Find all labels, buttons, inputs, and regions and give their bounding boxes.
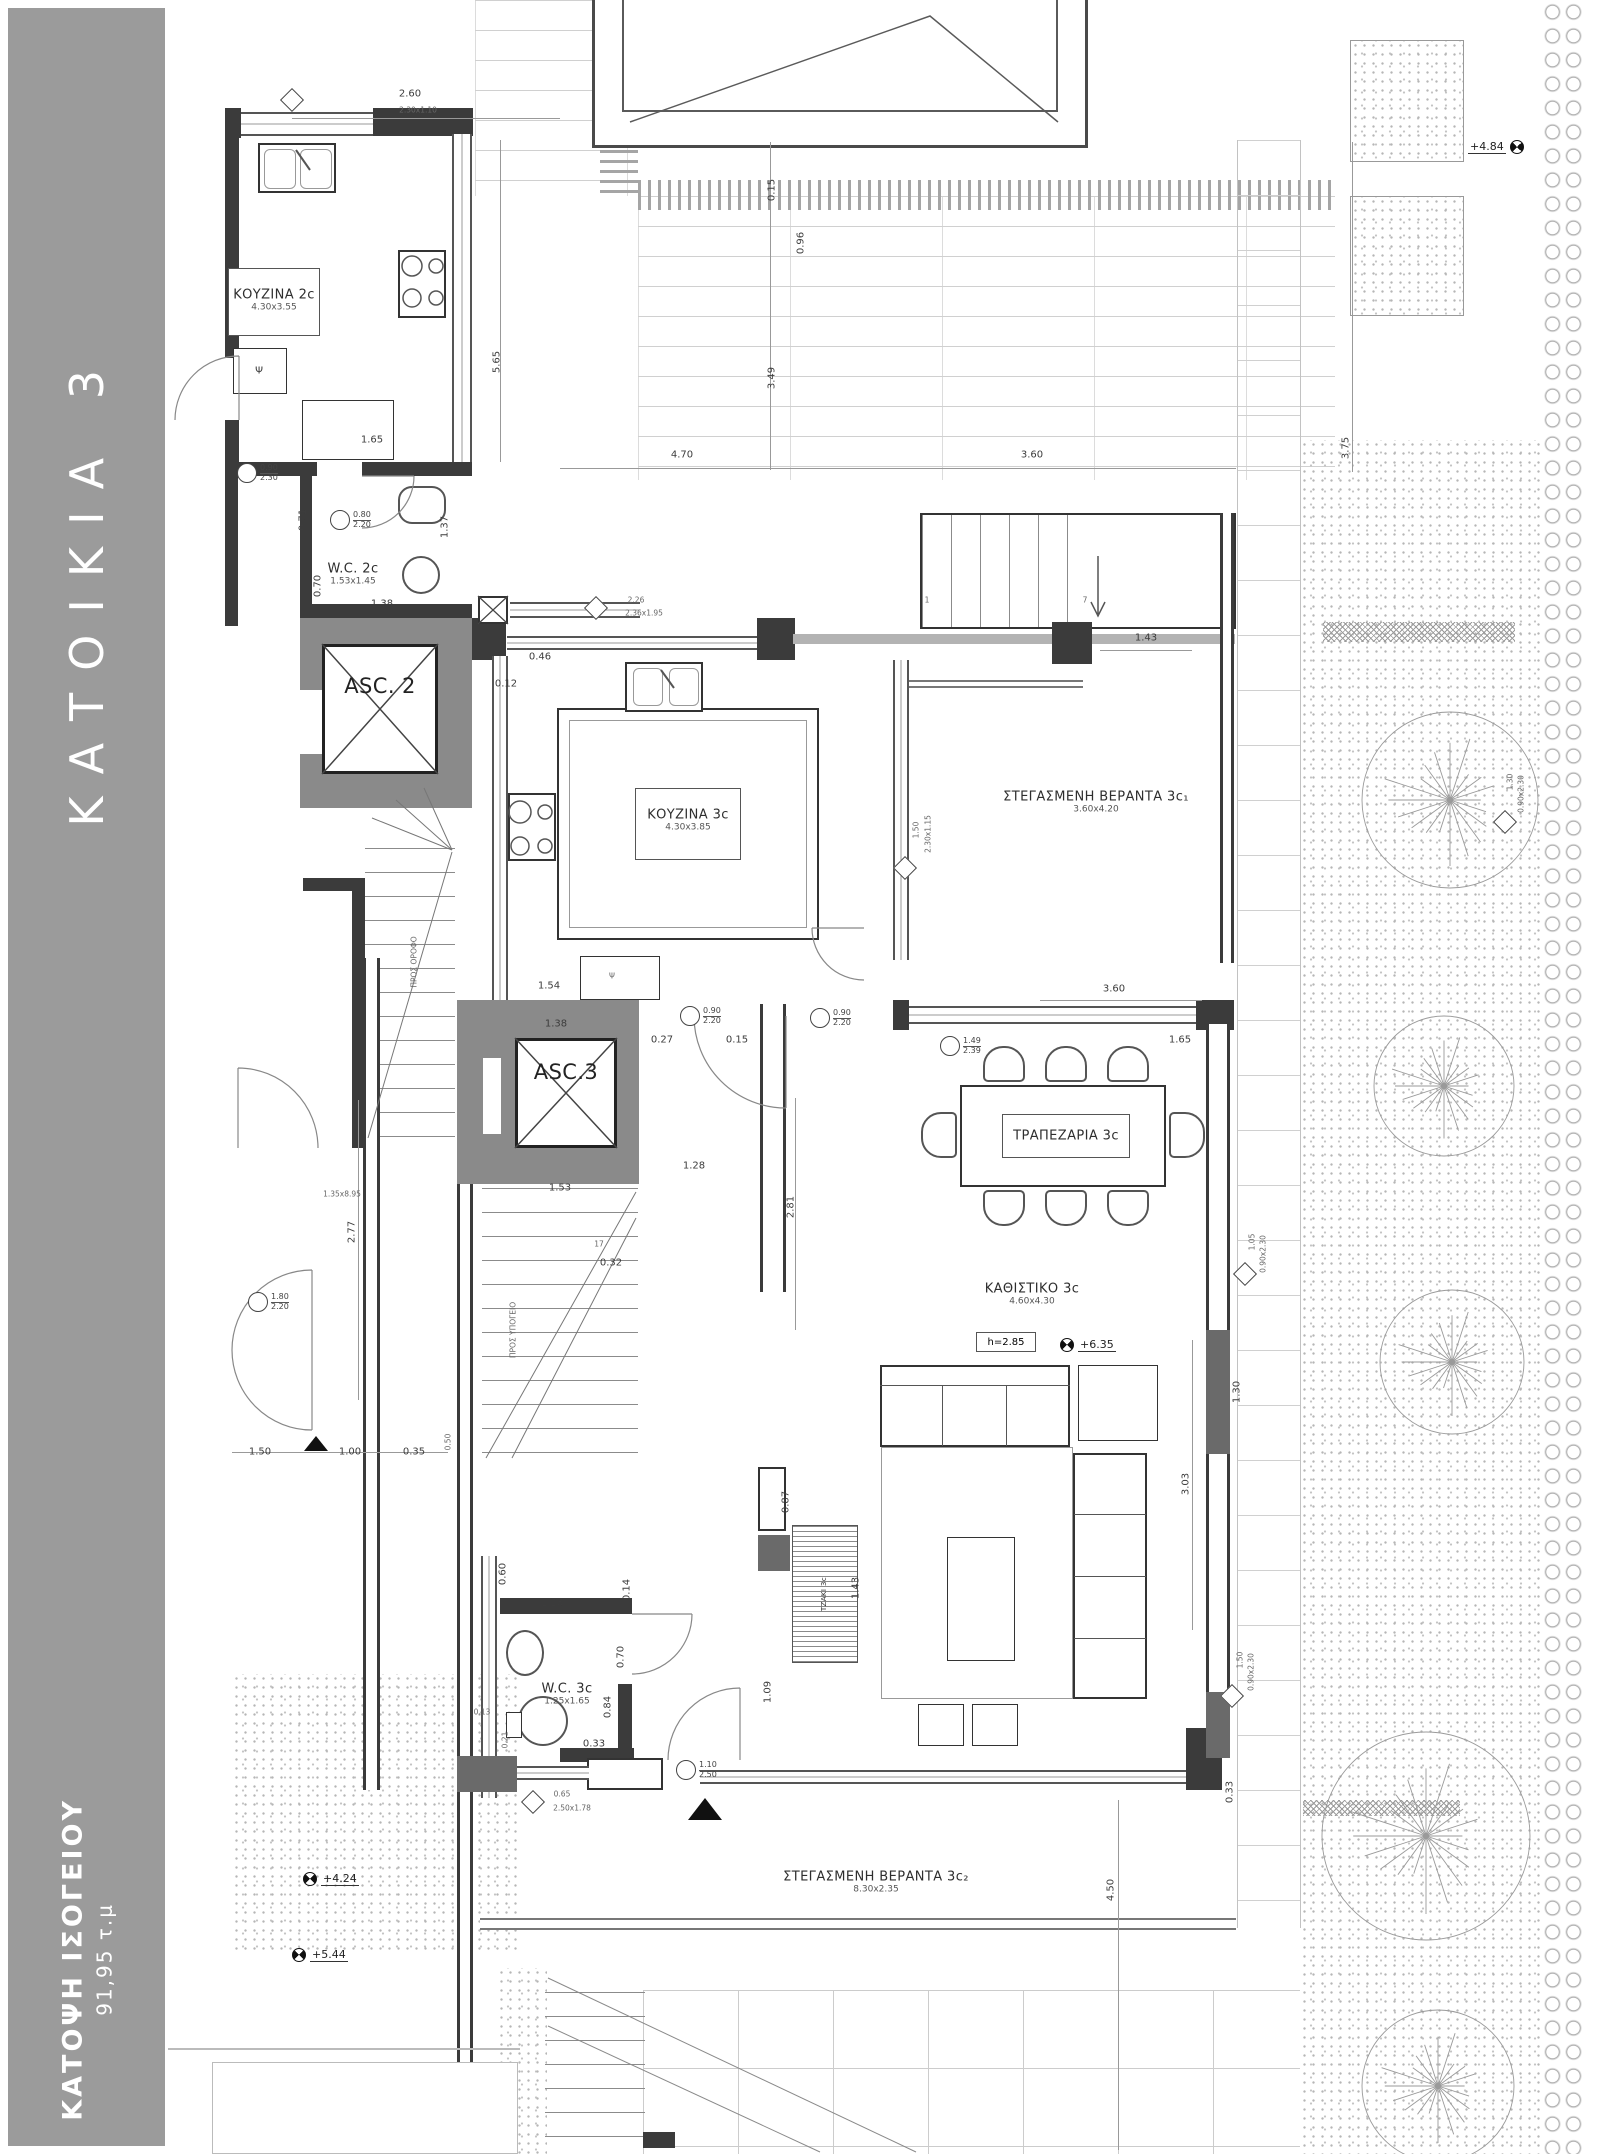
dimension-label: 1 bbox=[924, 596, 931, 605]
dimension-label: 2.81 bbox=[786, 1195, 797, 1219]
dimension-label: 5.65 bbox=[492, 350, 503, 374]
level-value: +6.35 bbox=[1078, 1338, 1116, 1352]
level-icon bbox=[289, 1945, 309, 1965]
drawing-shape: 1.49 bbox=[963, 1037, 981, 1046]
dimension-label: 0.90x2.30 bbox=[1259, 1234, 1268, 1274]
dimension-label: 4.70 bbox=[670, 450, 694, 461]
drawing-shape: 2.50 bbox=[699, 1770, 717, 1780]
circle-icon bbox=[248, 1292, 268, 1312]
drawing-shape: 0.90 bbox=[260, 464, 278, 473]
opening-diamond-marker bbox=[1220, 1684, 1244, 1708]
dimension-label: 2.50x1.78 bbox=[552, 1804, 592, 1813]
circle-icon bbox=[676, 1760, 696, 1780]
dimension-label: 2.30x1.15 bbox=[924, 814, 933, 854]
room-size: 8.30x2.35 bbox=[783, 1885, 969, 1895]
level-marker: +6.35 bbox=[1060, 1338, 1116, 1352]
dimension-label: 2.30x1.10 bbox=[398, 106, 438, 115]
room-name: ΤΖΑΚΙ 3c bbox=[820, 1577, 828, 1611]
opening-diamond-marker bbox=[1493, 810, 1517, 834]
dimension-label: 1.28 bbox=[682, 1161, 706, 1172]
dimension-label: 0.71 bbox=[298, 508, 309, 532]
room-size: 1.53x1.45 bbox=[327, 577, 378, 587]
level-value: +5.44 bbox=[310, 1948, 348, 1962]
level-marker: +5.44 bbox=[292, 1948, 348, 1962]
dimension-label: 2.36x1.95 bbox=[624, 609, 664, 618]
dimension-label: 1.00 bbox=[338, 1447, 362, 1458]
drawing-shape: 2.20 bbox=[703, 1016, 721, 1026]
door-circle-marker: 0.902.30 bbox=[237, 463, 278, 483]
dimension-label: 0.96 bbox=[796, 231, 807, 255]
level-marker: +4.84 bbox=[1468, 140, 1524, 154]
door-circle-marker: 0.802.20 bbox=[330, 510, 371, 530]
dimension-label: 0.50 bbox=[444, 1433, 453, 1452]
drawing-shape: 2.20 bbox=[271, 1302, 289, 1312]
dimension-label: ΠΡΟΣ ΥΠΟΓΕΙΟ bbox=[509, 1301, 518, 1359]
room-label: ASC.3 bbox=[534, 1060, 598, 1084]
dimension-label: 0.33 bbox=[582, 1739, 606, 1750]
level-marker: +4.24 bbox=[303, 1872, 359, 1886]
dimension-label: 1.50 bbox=[248, 1447, 272, 1458]
door-circle-marker: 0.902.20 bbox=[680, 1006, 721, 1026]
door-size: 1.802.20 bbox=[271, 1293, 289, 1312]
opening-diamond-marker bbox=[584, 596, 608, 620]
dimension-label: 1.54 bbox=[537, 981, 561, 992]
dimension-label: 1.65 bbox=[360, 435, 384, 446]
dimension-label: 0.35 bbox=[402, 1447, 426, 1458]
opening-diamond-marker bbox=[280, 88, 304, 112]
room-name: W.C. 3c bbox=[541, 1682, 592, 1697]
dimension-label: 1.35x8.95 bbox=[322, 1190, 362, 1199]
floor-plan-page: ΚΑΤΟΙΚΙΑ 3 ΚΑΤΟΨΗ ΙΣΟΓΕΙΟΥ 91,95 τ.μ bbox=[0, 0, 1600, 2154]
dimension-label: 0.87 bbox=[781, 1490, 792, 1514]
dimension-label: Ψ bbox=[608, 972, 616, 981]
door-size: 1.492.39 bbox=[963, 1037, 981, 1056]
door-circle-marker: 1.492.39 bbox=[940, 1036, 981, 1056]
dimension-label: 1.53 bbox=[548, 1183, 572, 1194]
level-icon bbox=[300, 1869, 320, 1889]
dimension-label: ΠΡΟΣ ΟΡΟΦΟ bbox=[410, 935, 419, 988]
room-name: ΤΡΑΠΕΖΑΡΙΑ 3c bbox=[1013, 1129, 1119, 1144]
room-label: ΤΡΑΠΕΖΑΡΙΑ 3c bbox=[1013, 1129, 1119, 1144]
plan-canvas: 2.602.30x1.105.651.654.703.600.150.963.4… bbox=[0, 0, 1600, 2154]
annotation-layer: 2.602.30x1.105.651.654.703.600.150.963.4… bbox=[0, 0, 1600, 2154]
dimension-label: 1.38 bbox=[370, 599, 394, 610]
dimension-label: 1.43 bbox=[851, 1576, 862, 1600]
room-label: ΚΑΘΙΣΤΙΚΟ 3c4.60x4.30 bbox=[985, 1282, 1080, 1307]
door-size: 1.102.50 bbox=[699, 1761, 717, 1780]
dimension-label: 1.37 bbox=[440, 515, 451, 539]
dimension-label: 0.90x2.30 bbox=[1517, 774, 1526, 814]
door-size: 0.802.20 bbox=[353, 511, 371, 530]
dimension-label: 0.15 bbox=[725, 1035, 749, 1046]
level-value: +4.84 bbox=[1468, 140, 1506, 154]
room-name: ΣΤΕΓΑΣΜΕΝΗ ΒΕΡΑΝΤΑ 3c₁ bbox=[1003, 790, 1189, 805]
room-name: ΚΟΥΖΙΝΑ 3c bbox=[647, 808, 729, 823]
dimension-label: 1.50 bbox=[912, 821, 921, 840]
dimension-label: 0.21 bbox=[501, 1731, 510, 1750]
dimension-label: Ψ bbox=[254, 366, 264, 377]
dimension-label: 0.65 bbox=[553, 1790, 572, 1799]
level-icon bbox=[1507, 137, 1527, 157]
room-label: ASC. 2 bbox=[344, 674, 415, 698]
opening-diamond-marker bbox=[893, 856, 917, 880]
opening-diamond-marker bbox=[521, 1790, 545, 1814]
dimension-label: 2.26 bbox=[627, 596, 646, 605]
circle-icon bbox=[940, 1036, 960, 1056]
drawing-shape: 2.30 bbox=[260, 473, 278, 483]
room-name: ASC. 2 bbox=[344, 674, 415, 698]
door-size: 0.902.30 bbox=[260, 464, 278, 483]
dimension-label: 0.14 bbox=[622, 1578, 633, 1602]
drawing-shape: 1.80 bbox=[271, 1293, 289, 1302]
room-label: ΚΟΥΖΙΝΑ 3c4.30x3.85 bbox=[647, 808, 729, 833]
dimension-label: 3.60 bbox=[1102, 984, 1126, 995]
dimension-label: 7 bbox=[1082, 596, 1089, 605]
drawing-shape: 1.10 bbox=[699, 1761, 717, 1770]
room-label: ΣΤΕΓΑΣΜΕΝΗ ΒΕΡΑΝΤΑ 3c₁3.60x4.20 bbox=[1003, 790, 1189, 815]
room-size: 4.30x3.55 bbox=[233, 303, 315, 313]
door-circle-marker: 0.902.20 bbox=[810, 1008, 851, 1028]
opening-diamond-marker bbox=[1233, 1262, 1257, 1286]
dimension-label: 0.90x2.30 bbox=[1247, 1652, 1256, 1692]
level-value: +4.24 bbox=[321, 1872, 359, 1886]
drawing-shape: 0.80 bbox=[353, 511, 371, 520]
drawing-shape: 0.90 bbox=[703, 1007, 721, 1016]
boxed-note: h=2.85 bbox=[976, 1332, 1036, 1352]
room-name: ΣΤΕΓΑΣΜΕΝΗ ΒΕΡΑΝΤΑ 3c₂ bbox=[783, 1870, 969, 1885]
dimension-label: 0.13 bbox=[473, 1708, 492, 1717]
room-size: 4.30x3.85 bbox=[647, 823, 729, 833]
dimension-label: 1.30 bbox=[1232, 1380, 1243, 1404]
dimension-label: 0.84 bbox=[603, 1695, 614, 1719]
dimension-label: 0.60 bbox=[498, 1562, 509, 1586]
room-size: 3.60x4.20 bbox=[1003, 805, 1189, 815]
room-label: ΣΤΕΓΑΣΜΕΝΗ ΒΕΡΑΝΤΑ 3c₂8.30x2.35 bbox=[783, 1870, 969, 1895]
room-label: ΚΟΥΖΙΝΑ 2c4.30x3.55 bbox=[233, 288, 315, 313]
dimension-label: 3.75 bbox=[1341, 436, 1352, 460]
room-size: 4.60x4.30 bbox=[985, 1297, 1080, 1307]
room-label: ΤΖΑΚΙ 3c bbox=[820, 1577, 828, 1611]
dimension-label: 4.50 bbox=[1106, 1878, 1117, 1902]
drawing-shape: 0.90 bbox=[833, 1009, 851, 1018]
door-size: 0.902.20 bbox=[833, 1009, 851, 1028]
dimension-label: 0.33 bbox=[1225, 1780, 1236, 1804]
drawing-shape: 2.39 bbox=[963, 1046, 981, 1056]
dimension-label: 1.50 bbox=[1236, 1651, 1245, 1670]
dimension-label: 3.49 bbox=[767, 366, 778, 390]
dimension-label: 3.60 bbox=[1020, 450, 1044, 461]
room-name: ΚΟΥΖΙΝΑ 2c bbox=[233, 288, 315, 303]
room-name: ΚΑΘΙΣΤΙΚΟ 3c bbox=[985, 1282, 1080, 1297]
dimension-label: 3.03 bbox=[1181, 1472, 1192, 1496]
dimension-label: 17 bbox=[593, 1240, 605, 1249]
dimension-label: 2.77 bbox=[347, 1220, 358, 1244]
dimension-label: 0.46 bbox=[528, 652, 552, 663]
room-name: W.C. 2c bbox=[327, 562, 378, 577]
dimension-label: 1.30 bbox=[1506, 773, 1515, 792]
dimension-label: 1.09 bbox=[763, 1680, 774, 1704]
room-name: ASC.3 bbox=[534, 1060, 598, 1084]
dimension-label: 1.38 bbox=[544, 1019, 568, 1030]
circle-icon bbox=[330, 510, 350, 530]
circle-icon bbox=[237, 463, 257, 483]
dimension-label: 1.65 bbox=[1168, 1035, 1192, 1046]
dimension-label: 0.70 bbox=[616, 1645, 627, 1669]
dimension-label: 1.43 bbox=[1134, 633, 1158, 644]
level-icon bbox=[1057, 1335, 1077, 1355]
dimension-label: 2.60 bbox=[398, 89, 422, 100]
dimension-label: 1.05 bbox=[1248, 1233, 1257, 1252]
circle-icon bbox=[680, 1006, 700, 1026]
dimension-label: 0.70 bbox=[313, 574, 324, 598]
door-size: 0.902.20 bbox=[703, 1007, 721, 1026]
room-label: W.C. 2c1.53x1.45 bbox=[327, 562, 378, 587]
drawing-shape: 2.20 bbox=[353, 520, 371, 530]
circle-icon bbox=[810, 1008, 830, 1028]
dimension-label: 1.28 bbox=[540, 1598, 564, 1609]
dimension-label: 0.12 bbox=[494, 679, 518, 690]
dimension-label: 0.32 bbox=[599, 1258, 623, 1269]
dimension-label: 0.15 bbox=[767, 178, 778, 202]
drawing-shape: 2.20 bbox=[833, 1018, 851, 1028]
room-label: W.C. 3c1.25x1.65 bbox=[541, 1682, 592, 1707]
dimension-label: 0.27 bbox=[650, 1035, 674, 1046]
room-size: 1.25x1.65 bbox=[541, 1697, 592, 1707]
door-circle-marker: 1.802.20 bbox=[248, 1292, 289, 1312]
door-circle-marker: 1.102.50 bbox=[676, 1760, 717, 1780]
